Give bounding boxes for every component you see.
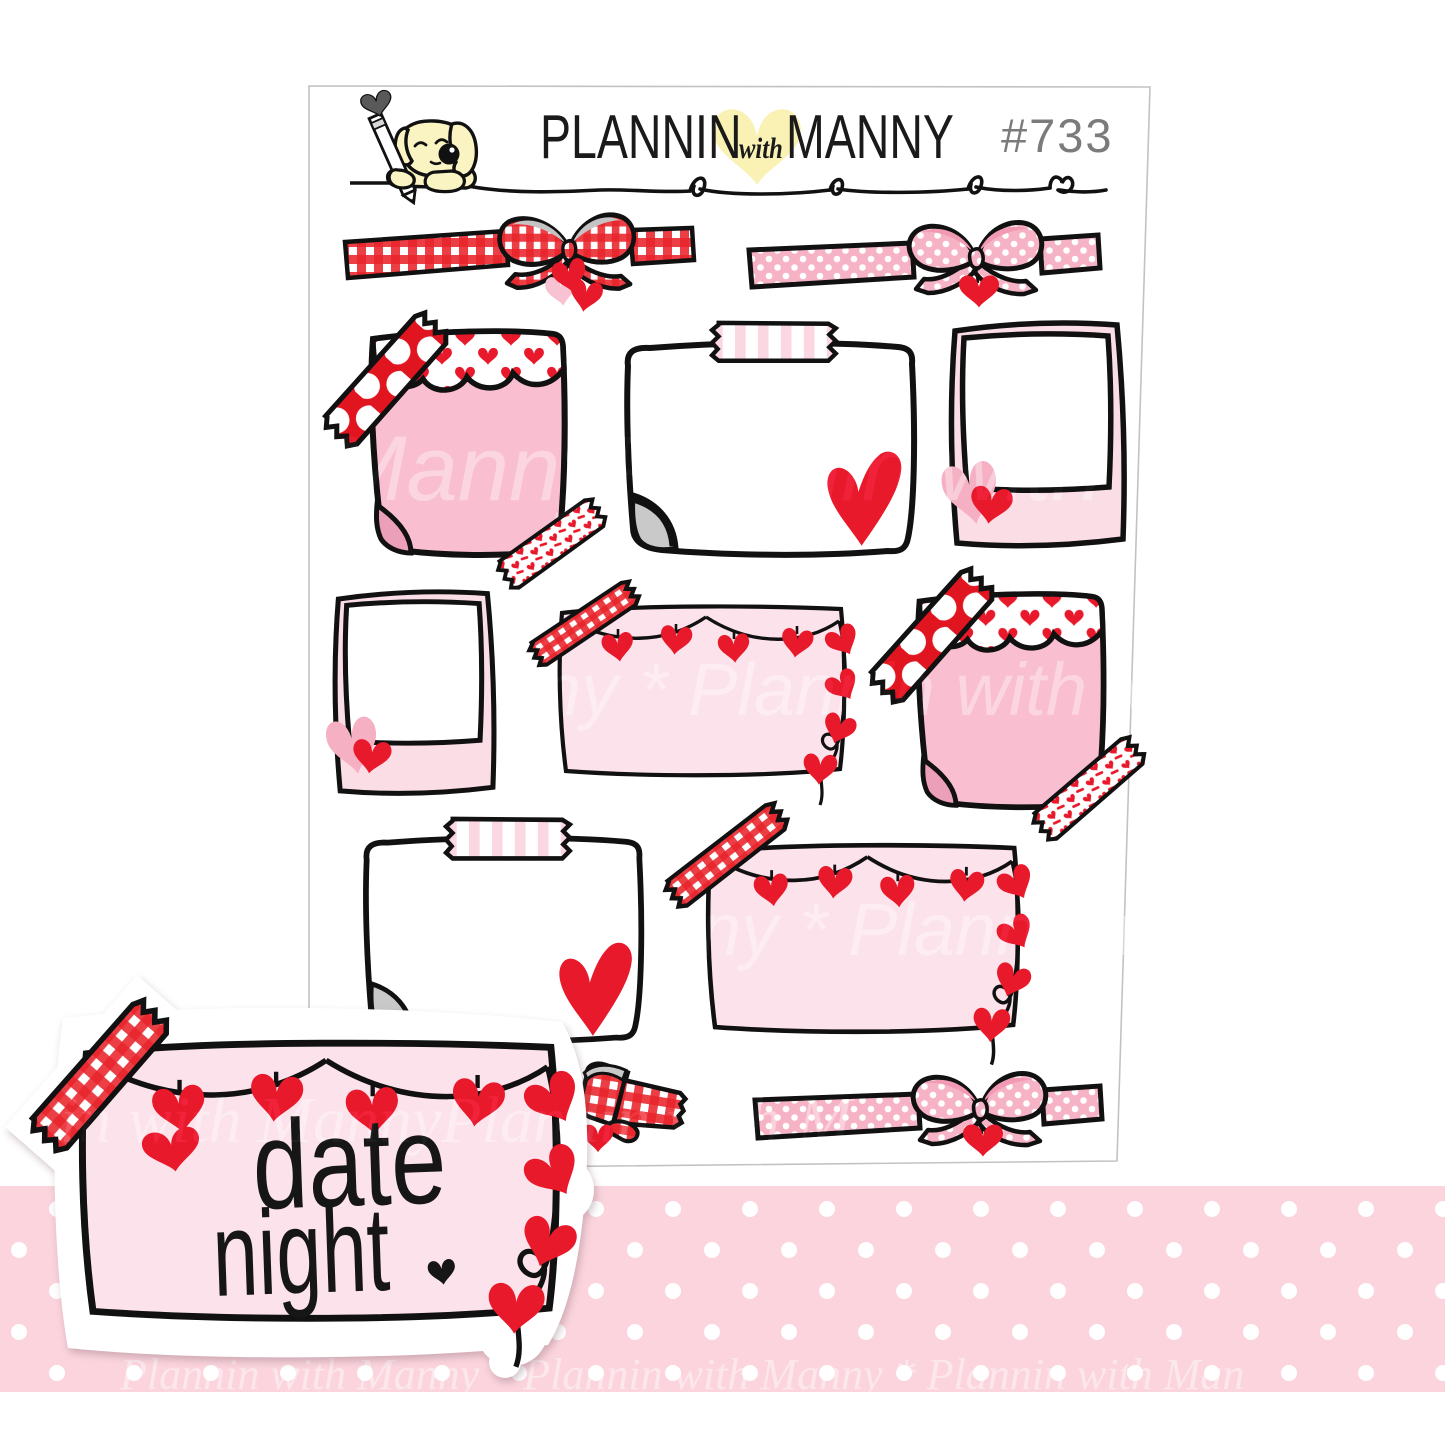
svg-text:in with MannyPlannin with M: in with MannyPlannin with M <box>60 1084 856 1157</box>
svg-text:MannyPlannin with: MannyPlannin with <box>330 418 1102 520</box>
svg-text:with: with <box>739 132 783 165</box>
svg-text:ny * Plannin with M: ny * Plannin with M <box>700 888 1330 971</box>
svg-text:PLANNIN: PLANNIN <box>540 101 742 171</box>
svg-text:#733: #733 <box>1001 109 1114 162</box>
svg-text:night: night <box>210 1181 392 1322</box>
svg-text:MANNY: MANNY <box>786 101 954 171</box>
svg-text:ny * Plannin with MannyPlannin: ny * Plannin with MannyPlannin w <box>540 648 1445 731</box>
